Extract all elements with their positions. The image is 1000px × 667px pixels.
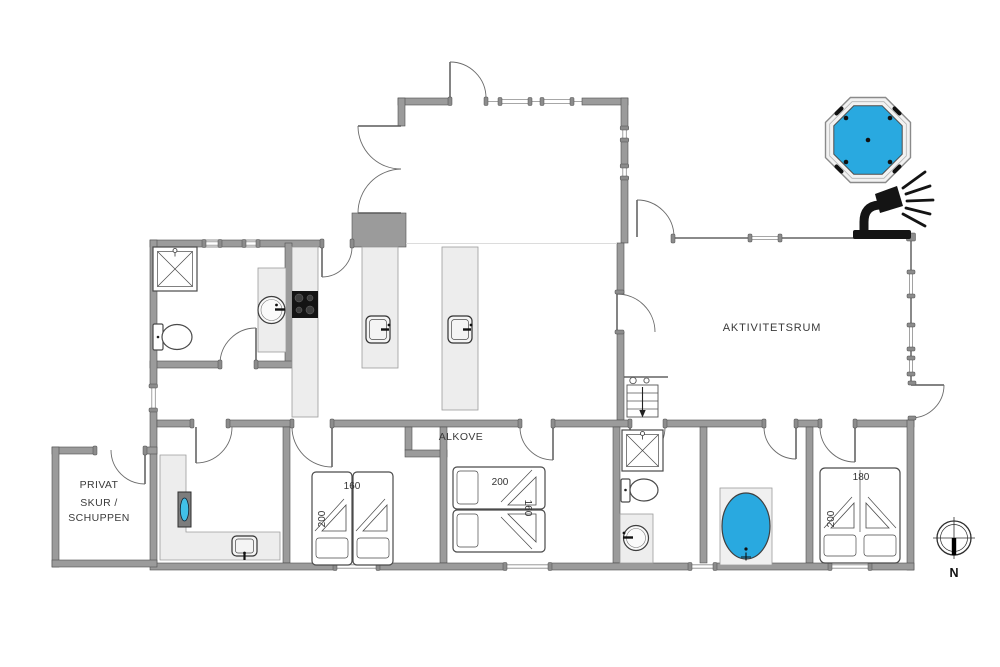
activity-room-label: AKTIVITETSRUM (723, 322, 821, 334)
window (540, 98, 574, 106)
door (448, 62, 488, 106)
bed-width-label: 180 (853, 472, 870, 483)
kitchen (292, 247, 478, 417)
floor-plan: 160 200 200 160 180 200 (0, 0, 1000, 667)
window (202, 240, 222, 248)
cooktop-icon (292, 291, 318, 318)
door (218, 328, 258, 369)
bathtub-icon (720, 488, 772, 565)
bed-length-label: 200 (492, 477, 509, 488)
washbasin-icon (258, 268, 286, 352)
window (748, 234, 782, 242)
sink-icon (232, 536, 257, 560)
bed-length-label: 200 (826, 510, 837, 527)
bed-width-label: 160 (522, 500, 533, 517)
shower-cabin-icon (153, 247, 197, 291)
door (320, 239, 354, 277)
toilet-icon (153, 324, 192, 350)
window (620, 164, 629, 180)
door (637, 200, 675, 243)
window (907, 270, 915, 298)
toilet-icon (621, 479, 658, 502)
shower-cabin-icon (622, 430, 663, 471)
bed-width-label: 160 (344, 481, 361, 492)
sink-icon (366, 316, 390, 343)
compass-rose-icon: N (933, 517, 975, 580)
window (242, 240, 260, 248)
bed-length-label: 200 (317, 510, 328, 527)
sink-icon (448, 316, 472, 343)
bed-west-bedroom: 160 200 (312, 472, 393, 565)
door (190, 419, 232, 463)
door (908, 381, 944, 420)
alcove-label: ALKOVE (439, 431, 483, 443)
window (620, 126, 629, 142)
bed-east-bedroom: 180 200 (820, 468, 900, 563)
bathroom-south (620, 430, 663, 563)
utility-room (160, 455, 280, 560)
door (358, 169, 401, 213)
washbasin-icon (620, 514, 653, 563)
window (498, 98, 532, 106)
tv-icon (178, 492, 191, 527)
compass-north-label: N (949, 566, 958, 580)
door (358, 126, 401, 169)
shed-label-line1: PRIVAT (80, 479, 119, 491)
window (907, 356, 915, 376)
window (828, 563, 872, 571)
bathroom-north (153, 247, 286, 352)
bed-alcove: 200 160 (453, 467, 545, 552)
door (290, 419, 334, 467)
door (818, 419, 857, 462)
window (907, 323, 915, 351)
hot-tub-icon (826, 98, 911, 183)
window (149, 384, 158, 412)
shed-label-line2: SKUR / (80, 497, 117, 509)
door (615, 290, 655, 334)
door (762, 419, 798, 459)
door (518, 419, 555, 460)
window (503, 563, 552, 571)
bathtub-room (720, 488, 772, 565)
stairs-down-icon (627, 377, 658, 417)
floor-plan-page: 160 200 200 160 180 200 (0, 0, 1000, 667)
window (688, 563, 717, 571)
shed-label-line3: SCHUPPEN (68, 512, 130, 524)
